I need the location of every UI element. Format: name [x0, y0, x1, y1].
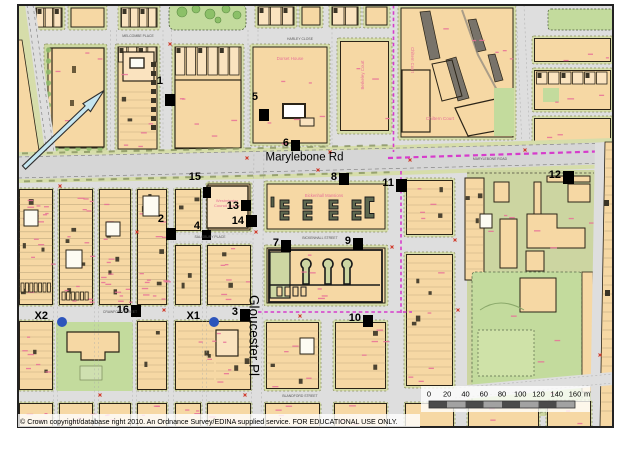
svg-text:X2: X2	[35, 310, 48, 322]
svg-text:120: 120	[532, 390, 545, 399]
svg-text:BICKENHALL STREET: BICKENHALL STREET	[302, 236, 337, 240]
svg-text:2: 2	[158, 213, 164, 225]
svg-text:10: 10	[349, 312, 361, 324]
svg-text:140: 140	[551, 390, 564, 399]
svg-text:20: 20	[443, 390, 451, 399]
svg-text:m: m	[584, 390, 590, 399]
svg-text:3: 3	[232, 306, 238, 318]
svg-text:Berkeley Court: Berkeley Court	[360, 60, 365, 90]
svg-text:0: 0	[427, 390, 431, 399]
svg-text:15: 15	[189, 171, 201, 183]
svg-text:Bickenhall Mansions: Bickenhall Mansions	[305, 193, 343, 198]
svg-text:40: 40	[461, 390, 469, 399]
svg-text:12: 12	[549, 169, 561, 181]
svg-text:7: 7	[273, 237, 279, 249]
svg-text:Chiltern Court: Chiltern Court	[410, 47, 415, 74]
svg-text:11: 11	[382, 177, 394, 189]
svg-text:CRAWFORD STREET: CRAWFORD STREET	[103, 310, 137, 314]
svg-text:1: 1	[157, 75, 163, 87]
svg-text:X1: X1	[187, 310, 200, 322]
svg-text:© Crown copyright/database rig: © Crown copyright/database right 2010. A…	[20, 418, 398, 426]
svg-text:8: 8	[331, 171, 337, 183]
svg-text:MELCOMBE PLACE: MELCOMBE PLACE	[122, 34, 154, 38]
svg-text:SALISBURY PLACE: SALISBURY PLACE	[195, 235, 227, 239]
svg-text:Chiltern Court: Chiltern Court	[426, 116, 455, 121]
svg-text:BLANDFORD STREET: BLANDFORD STREET	[282, 394, 317, 398]
svg-text:13: 13	[227, 200, 239, 212]
svg-text:100: 100	[514, 390, 527, 399]
svg-text:6: 6	[283, 137, 289, 149]
svg-text:14: 14	[232, 215, 245, 227]
svg-text:Gloucester Pl: Gloucester Pl	[247, 295, 262, 376]
svg-text:160: 160	[569, 390, 582, 399]
svg-text:Marylebone Rd: Marylebone Rd	[266, 152, 344, 164]
svg-text:60: 60	[480, 390, 488, 399]
svg-text:HARLEY CLOSE: HARLEY CLOSE	[287, 37, 314, 41]
svg-text:Dorset House: Dorset House	[277, 56, 304, 61]
svg-text:MARYLEBONE ROAD: MARYLEBONE ROAD	[473, 157, 508, 161]
svg-text:5: 5	[252, 91, 258, 103]
svg-text:80: 80	[498, 390, 506, 399]
svg-text:9: 9	[345, 235, 351, 247]
svg-text:4: 4	[194, 220, 201, 232]
